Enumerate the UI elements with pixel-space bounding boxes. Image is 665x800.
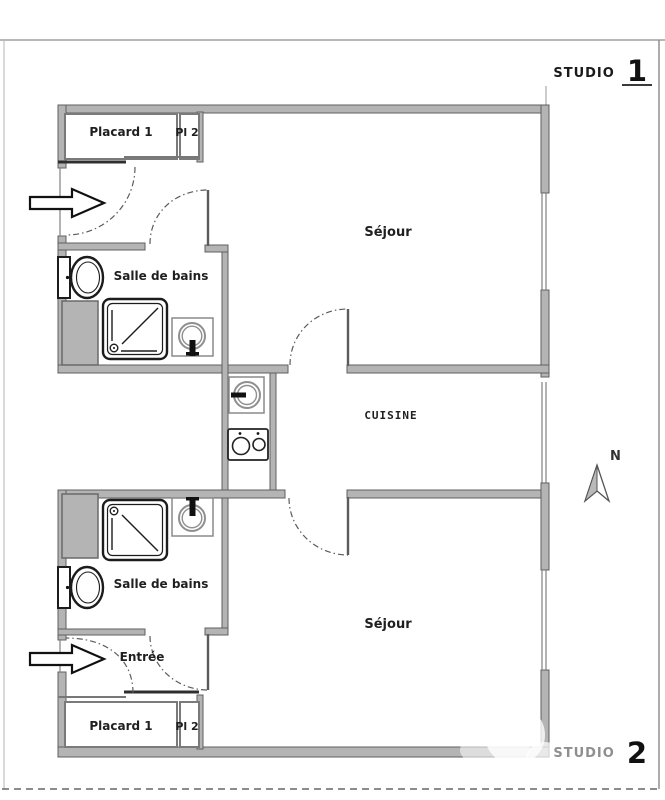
studio2-title: STUDIO 2 [540, 740, 652, 766]
room-label-entree-studio2: Entrée [102, 651, 182, 664]
studio2-washbasin-icon [172, 497, 213, 536]
entrance-arrow-icon-studio2 [30, 645, 104, 673]
studio2-toilet-icon [58, 567, 103, 608]
studio1-washbasin-icon [172, 318, 213, 356]
studio2-title-word: STUDIO [553, 746, 614, 766]
kitchen-window [542, 382, 546, 486]
room-label-cuisine: CUISINE [331, 410, 451, 422]
room-label-pl2-studio1: Pl 2 [172, 127, 202, 139]
studio1-title-number: 1 [622, 58, 652, 86]
studio1-title: STUDIO 1 [540, 58, 652, 86]
room-label-sejour-studio1: Séjour [338, 226, 438, 240]
studio1-toilet-icon [58, 257, 103, 298]
room-label-sejour-studio2: Séjour [338, 618, 438, 632]
room-label-bathroom-studio2: Salle de bains [99, 578, 223, 591]
kitchen-walls [270, 373, 276, 490]
entrance-arrow-icon-studio1 [30, 189, 104, 217]
room-label-placard1-studio2: Placard 1 [66, 720, 176, 733]
north-label: N [610, 449, 621, 464]
studio2-title-number: 2 [622, 740, 652, 766]
north-compass-icon [585, 465, 609, 501]
kitchen-sink-icon [229, 377, 264, 413]
stove-icon [228, 429, 268, 460]
room-label-pl2-studio2: Pl 2 [172, 721, 202, 733]
floorplan-drawing [0, 0, 665, 800]
room-label-bathroom-studio1: Salle de bains [99, 270, 223, 283]
studio2-duct [62, 494, 98, 558]
studio2-shower-icon [103, 500, 167, 560]
studio1-shower-icon [103, 299, 167, 359]
floorplan-page: STUDIO 1 Placard 1 Pl 2 Séjour Salle de … [0, 0, 665, 800]
studio1-duct [62, 301, 98, 365]
studio1-title-word: STUDIO [553, 66, 614, 86]
room-label-placard1-studio1: Placard 1 [66, 126, 176, 139]
